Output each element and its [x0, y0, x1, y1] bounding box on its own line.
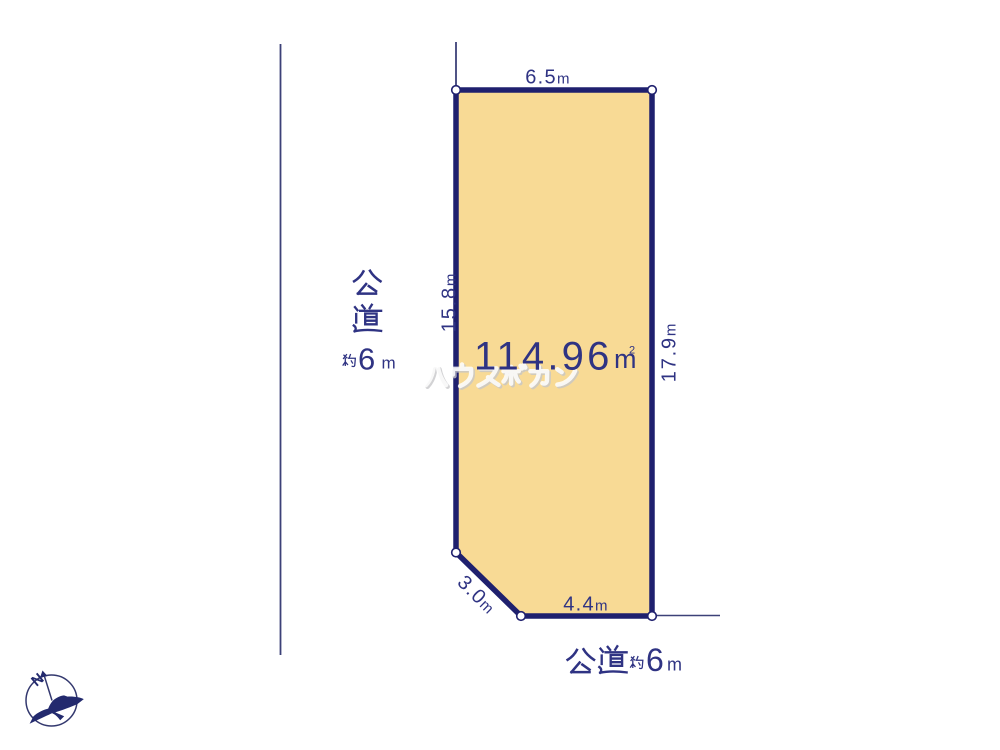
svg-text:m: m [667, 655, 682, 675]
svg-text:114.96: 114.96 [474, 335, 613, 379]
svg-text:17.9m: 17.9m [659, 322, 681, 382]
svg-text:4.4m: 4.4m [563, 594, 609, 616]
svg-text:15.8m: 15.8m [439, 272, 461, 332]
svg-text:6.5m: 6.5m [525, 67, 571, 89]
svg-text:6: 6 [358, 342, 375, 377]
svg-text:m: m [382, 354, 396, 373]
svg-text:2: 2 [629, 345, 635, 357]
svg-text:6: 6 [646, 642, 664, 678]
